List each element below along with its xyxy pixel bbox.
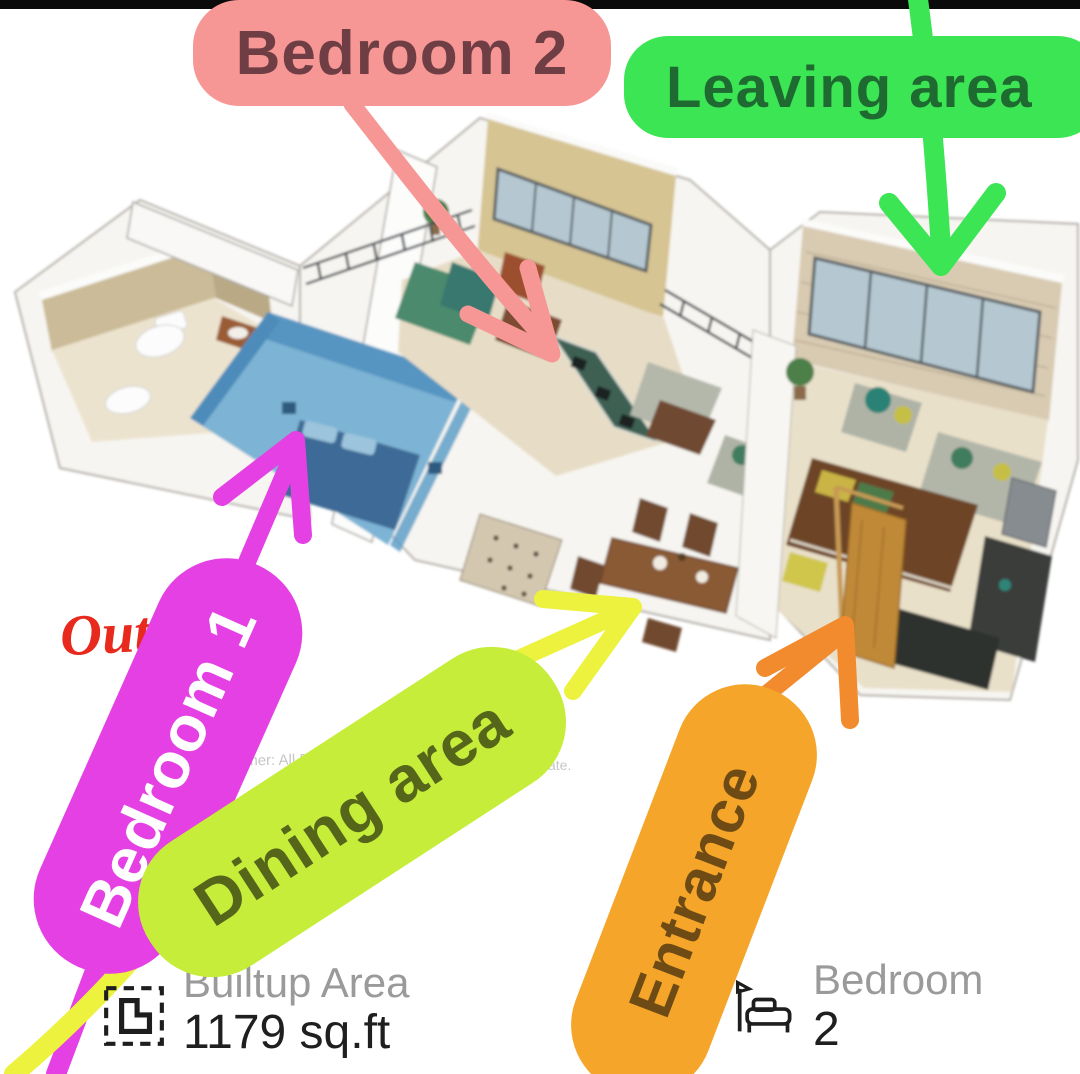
callout-leaving-area-text: Leaving area <box>666 54 1033 121</box>
bedroom-count-value: 2 <box>813 1003 983 1057</box>
bedroom-count-stat: Bedroom 2 <box>813 957 983 1057</box>
callout-bedroom-2-text: Bedroom 2 <box>236 18 569 89</box>
annotated-floor-plan-image: isclaimer: All Dimen ate. <box>0 0 1080 1074</box>
callout-leaving-area: Leaving area <box>624 36 1080 138</box>
area-outline-icon <box>101 983 167 1049</box>
callout-bedroom-2: Bedroom 2 <box>193 0 611 106</box>
bedroom-count-label: Bedroom <box>813 957 983 1003</box>
builtup-area-value: 1179 sq.ft <box>183 1006 410 1060</box>
bed-icon <box>728 978 796 1038</box>
